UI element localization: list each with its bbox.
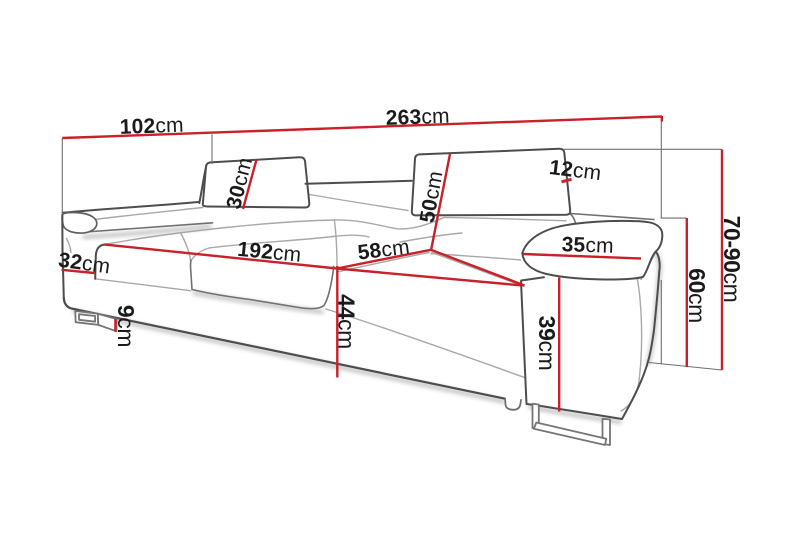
svg-text:44cm: 44cm bbox=[334, 294, 360, 349]
svg-text:9cm: 9cm bbox=[113, 305, 139, 347]
svg-text:60cm: 60cm bbox=[684, 268, 710, 323]
svg-text:39cm: 39cm bbox=[534, 316, 560, 371]
svg-text:35cm: 35cm bbox=[561, 233, 614, 258]
svg-text:32cm: 32cm bbox=[57, 249, 112, 279]
svg-text:263cm: 263cm bbox=[385, 105, 450, 130]
svg-text:70-90cm: 70-90cm bbox=[719, 216, 745, 303]
svg-text:102cm: 102cm bbox=[119, 114, 184, 139]
svg-text:58cm: 58cm bbox=[356, 235, 411, 264]
svg-text:192cm: 192cm bbox=[236, 238, 302, 267]
